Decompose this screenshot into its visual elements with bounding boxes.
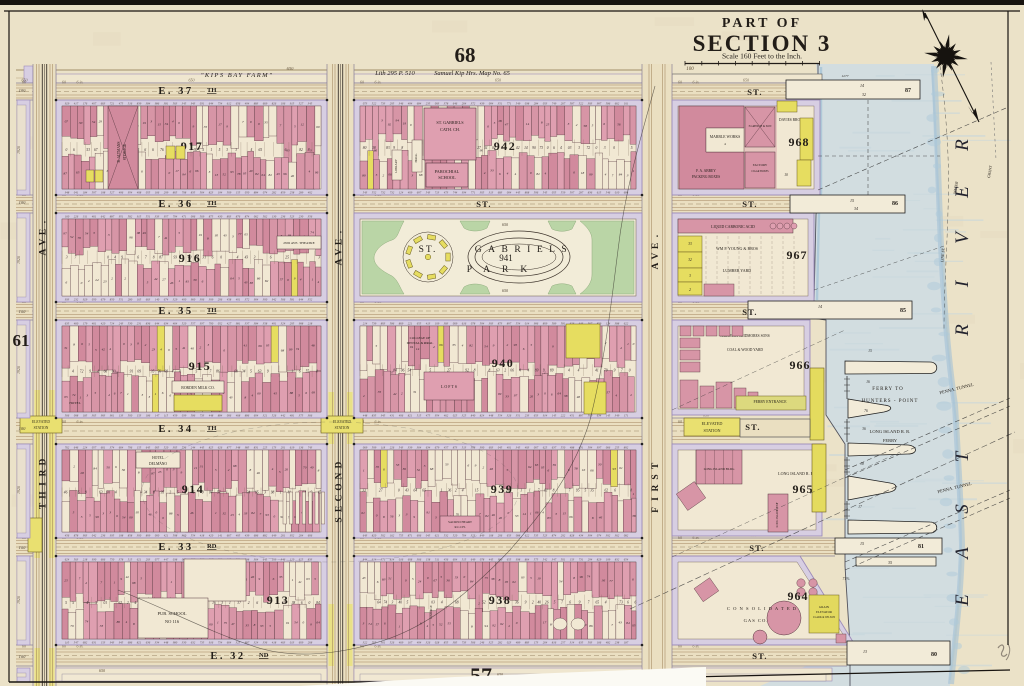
svg-text:194: 194 (218, 191, 223, 195)
svg-text:S: S (335, 517, 345, 522)
svg-text:874: 874 (552, 534, 557, 538)
svg-text:35: 35 (246, 623, 250, 627)
svg-text:589: 589 (552, 322, 557, 326)
svg-text:40: 40 (538, 601, 542, 605)
svg-text:347: 347 (552, 558, 557, 562)
svg-text:94: 94 (485, 624, 489, 628)
svg-text:5: 5 (269, 624, 271, 628)
svg-text:1: 1 (627, 342, 629, 346)
svg-text:38: 38 (372, 146, 376, 150)
svg-text:52: 52 (417, 468, 421, 472)
svg-text:3: 3 (627, 174, 629, 178)
svg-text:1926: 1926 (16, 256, 21, 264)
svg-text:LIBRARY: LIBRARY (394, 158, 398, 173)
svg-text:735: 735 (200, 641, 205, 645)
svg-text:372: 372 (245, 298, 250, 302)
svg-text:16: 16 (212, 601, 216, 605)
svg-text:078: 078 (471, 322, 476, 326)
svg-text:488: 488 (570, 446, 575, 450)
svg-text:2: 2 (483, 465, 485, 469)
svg-text:2: 2 (508, 624, 510, 628)
svg-text:HOTEL: HOTEL (152, 456, 164, 460)
svg-text:653: 653 (507, 534, 512, 538)
svg-text:650: 650 (189, 78, 195, 83)
svg-text:46: 46 (251, 575, 255, 579)
svg-text:64: 64 (377, 601, 381, 605)
svg-text:803: 803 (381, 322, 386, 326)
svg-text:7: 7 (120, 391, 122, 395)
svg-text:6: 6 (116, 514, 118, 518)
svg-text:84: 84 (619, 173, 623, 177)
svg-text:93: 93 (521, 575, 525, 579)
svg-text:515: 515 (128, 558, 133, 562)
svg-text:D: D (335, 461, 345, 468)
svg-text:3: 3 (411, 173, 413, 177)
svg-text:42: 42 (126, 575, 130, 579)
svg-text:469: 469 (399, 641, 404, 645)
svg-text:5: 5 (175, 347, 177, 351)
svg-text:9: 9 (475, 464, 477, 468)
svg-text:011: 011 (624, 102, 629, 106)
svg-text:4: 4 (237, 256, 239, 260)
svg-text:481: 481 (290, 414, 295, 418)
svg-text:445: 445 (489, 558, 494, 562)
svg-text:100: 100 (19, 88, 27, 93)
svg-text:9: 9 (543, 369, 545, 373)
svg-text:57: 57 (280, 278, 284, 282)
svg-text:1: 1 (280, 491, 282, 495)
svg-text:733: 733 (462, 641, 467, 645)
svg-text:64: 64 (230, 277, 234, 281)
svg-text:4: 4 (542, 511, 544, 515)
svg-text:35: 35 (590, 489, 594, 493)
svg-text:0: 0 (274, 515, 276, 519)
svg-text:83: 83 (250, 281, 254, 285)
svg-text:94: 94 (396, 118, 400, 122)
svg-text:4: 4 (85, 581, 87, 585)
svg-text:951: 951 (119, 215, 124, 219)
svg-text:70: 70 (78, 236, 82, 240)
svg-text:PARK: PARK (467, 265, 539, 275)
svg-text:622: 622 (624, 322, 629, 326)
svg-text:11: 11 (194, 466, 197, 470)
svg-text:0: 0 (398, 489, 400, 493)
svg-text:828: 828 (570, 534, 575, 538)
svg-text:869: 869 (399, 322, 404, 326)
svg-text:FERRY ENTRANCE: FERRY ENTRANCE (753, 400, 787, 404)
svg-text:96: 96 (315, 171, 319, 175)
svg-text:2: 2 (73, 465, 75, 469)
svg-text:94: 94 (182, 173, 186, 177)
svg-text:TH: TH (207, 87, 216, 94)
svg-text:526: 526 (390, 641, 395, 645)
svg-text:6: 6 (299, 370, 301, 374)
svg-text:964: 964 (788, 589, 809, 603)
svg-text:764: 764 (462, 534, 467, 538)
svg-text:51: 51 (388, 577, 392, 581)
svg-text:54: 54 (484, 345, 488, 349)
svg-text:5: 5 (215, 468, 217, 472)
svg-text:581: 581 (561, 322, 566, 326)
svg-text:069: 069 (363, 446, 368, 450)
svg-text:7: 7 (145, 256, 147, 260)
svg-text:445: 445 (516, 191, 521, 195)
svg-text:264: 264 (299, 534, 304, 538)
svg-text:31: 31 (64, 346, 68, 350)
svg-text:64: 64 (414, 489, 418, 493)
svg-text:145: 145 (606, 414, 611, 418)
svg-text:6: 6 (383, 468, 385, 472)
svg-text:351: 351 (498, 102, 503, 106)
svg-text:LUMBER YARD: LUMBER YARD (723, 268, 752, 273)
svg-text:96: 96 (580, 575, 584, 579)
svg-text:406: 406 (399, 414, 404, 418)
svg-text:34: 34 (165, 122, 169, 126)
svg-text:7: 7 (569, 489, 571, 493)
svg-text:028: 028 (435, 641, 440, 645)
svg-text:74: 74 (72, 393, 76, 397)
svg-text:E. 35: E. 35 (158, 306, 193, 317)
svg-text:5: 5 (178, 231, 180, 235)
svg-text:40: 40 (249, 169, 253, 173)
svg-text:41: 41 (164, 236, 168, 240)
svg-text:147: 147 (155, 414, 160, 418)
svg-text:6: 6 (273, 577, 275, 581)
svg-text:5: 5 (440, 575, 442, 579)
svg-text:637: 637 (552, 446, 557, 450)
svg-text:9: 9 (259, 577, 261, 581)
svg-text:314: 314 (570, 641, 575, 645)
svg-text:9: 9 (552, 345, 554, 349)
svg-text:8: 8 (630, 489, 632, 493)
svg-text:3: 3 (235, 148, 237, 152)
svg-text:34: 34 (242, 370, 246, 374)
svg-text:5: 5 (530, 576, 532, 580)
svg-text:448: 448 (164, 641, 169, 645)
svg-text:4: 4 (308, 170, 310, 174)
svg-text:3: 3 (398, 514, 400, 518)
svg-text:86: 86 (216, 370, 220, 374)
svg-text:13: 13 (215, 173, 219, 177)
svg-text:60: 60 (62, 80, 66, 85)
svg-text:3: 3 (130, 343, 132, 347)
svg-text:93: 93 (174, 256, 178, 260)
svg-text:442: 442 (281, 414, 286, 418)
svg-text:439: 439 (245, 534, 250, 538)
svg-text:631: 631 (92, 641, 97, 645)
svg-text:456: 456 (444, 558, 449, 562)
svg-text:28: 28 (80, 471, 84, 475)
svg-text:SCHOOL: SCHOOL (438, 175, 456, 180)
svg-text:3: 3 (264, 491, 266, 495)
svg-text:57: 57 (217, 491, 221, 495)
svg-text:6 in.: 6 in. (374, 80, 381, 85)
svg-text:43: 43 (362, 576, 366, 580)
svg-text:186: 186 (146, 414, 151, 418)
svg-text:CIGAR BOXES: CIGAR BOXES (751, 170, 769, 173)
svg-text:32: 32 (223, 512, 227, 516)
svg-text:53: 53 (515, 514, 519, 518)
svg-text:625: 625 (543, 446, 548, 450)
svg-text:884: 884 (218, 414, 223, 418)
svg-text:41: 41 (182, 346, 186, 350)
svg-text:6: 6 (547, 469, 549, 473)
svg-text:09: 09 (137, 370, 141, 374)
svg-text:622: 622 (525, 534, 530, 538)
svg-text:8: 8 (318, 468, 320, 472)
svg-text:4: 4 (114, 256, 116, 260)
svg-text:8: 8 (499, 578, 501, 582)
svg-text:235: 235 (426, 102, 431, 106)
svg-text:798: 798 (182, 191, 187, 195)
svg-text:874: 874 (245, 215, 250, 219)
svg-text:468: 468 (236, 414, 241, 418)
svg-text:649: 649 (471, 558, 476, 562)
svg-text:43: 43 (618, 621, 622, 625)
svg-text:3: 3 (310, 149, 312, 153)
svg-text:981: 981 (236, 322, 241, 326)
svg-text:218: 218 (308, 322, 313, 326)
svg-text:2: 2 (199, 346, 201, 350)
svg-text:831: 831 (254, 446, 259, 450)
svg-text:358: 358 (263, 322, 268, 326)
svg-text:915: 915 (189, 359, 212, 373)
svg-text:345: 345 (182, 102, 187, 106)
svg-text:5: 5 (298, 394, 300, 398)
svg-text:37: 37 (237, 601, 241, 605)
svg-text:78: 78 (237, 172, 241, 176)
svg-text:7: 7 (561, 601, 563, 605)
svg-text:53: 53 (396, 463, 400, 467)
svg-text:378: 378 (444, 102, 449, 106)
svg-text:0: 0 (178, 121, 180, 125)
svg-text:771: 771 (507, 102, 512, 106)
svg-text:4: 4 (135, 601, 137, 605)
svg-text:DAVIES BROS.: DAVIES BROS. (779, 118, 803, 122)
svg-text:460: 460 (74, 322, 79, 326)
svg-text:0: 0 (309, 601, 311, 605)
svg-text:6 in.: 6 in. (76, 419, 83, 424)
svg-text:408: 408 (137, 191, 142, 195)
svg-text:3: 3 (406, 513, 408, 517)
svg-text:4: 4 (251, 394, 253, 398)
svg-text:074: 074 (597, 534, 602, 538)
svg-text:34: 34 (144, 491, 148, 495)
svg-text:542: 542 (543, 558, 548, 562)
svg-text:3: 3 (208, 343, 210, 347)
svg-text:897: 897 (507, 322, 512, 326)
svg-text:731: 731 (579, 558, 584, 562)
svg-text:3: 3 (568, 122, 570, 126)
svg-text:1: 1 (312, 278, 314, 282)
svg-text:44: 44 (154, 277, 158, 281)
svg-text:494: 494 (408, 102, 413, 106)
svg-text:597: 597 (92, 191, 97, 195)
svg-text:LONG ISLAND EXP: LONG ISLAND EXP (776, 502, 779, 527)
svg-text:68: 68 (419, 173, 423, 177)
svg-text:06: 06 (569, 515, 573, 519)
svg-text:635: 635 (579, 641, 584, 645)
svg-text:43: 43 (276, 172, 280, 176)
svg-text:3: 3 (578, 146, 580, 150)
svg-text:023: 023 (507, 641, 512, 645)
svg-text:84: 84 (251, 511, 255, 515)
svg-text:849: 849 (480, 534, 485, 538)
svg-text:050: 050 (92, 298, 97, 302)
svg-text:933: 933 (65, 298, 70, 302)
svg-text:374: 374 (110, 446, 115, 450)
svg-text:41: 41 (244, 344, 248, 348)
svg-text:40: 40 (191, 346, 195, 350)
svg-text:95: 95 (136, 510, 140, 514)
svg-text:4: 4 (238, 512, 240, 516)
svg-text:941: 941 (499, 253, 513, 263)
svg-text:0: 0 (464, 575, 466, 579)
svg-text:645: 645 (263, 558, 268, 562)
svg-text:17: 17 (175, 169, 179, 173)
svg-text:FERRY: FERRY (883, 438, 898, 443)
svg-text:PART OF: PART OF (722, 16, 802, 31)
svg-text:6: 6 (551, 392, 553, 396)
svg-text:6: 6 (487, 125, 489, 129)
svg-text:877: 877 (227, 446, 232, 450)
svg-text:045: 045 (498, 446, 503, 450)
svg-text:5: 5 (89, 514, 91, 518)
svg-text:E: E (651, 243, 661, 249)
svg-text:83: 83 (547, 516, 551, 520)
svg-text:84: 84 (393, 369, 397, 373)
svg-text:045: 045 (426, 534, 431, 538)
svg-text:2: 2 (88, 279, 90, 283)
svg-text:E. 33: E. 33 (158, 542, 193, 553)
svg-text:65: 65 (259, 148, 263, 152)
svg-text:90: 90 (96, 515, 100, 519)
svg-text:8: 8 (153, 491, 155, 495)
svg-text:564: 564 (200, 191, 205, 195)
svg-text:R: R (651, 484, 661, 491)
svg-text:545: 545 (543, 191, 548, 195)
svg-text:586: 586 (191, 414, 196, 418)
svg-text:5: 5 (250, 370, 252, 374)
svg-text:SACRED HEART: SACRED HEART (448, 520, 472, 524)
svg-text:616: 616 (462, 322, 467, 326)
svg-text:56: 56 (122, 468, 126, 472)
svg-text:532: 532 (444, 534, 449, 538)
svg-text:31: 31 (413, 390, 417, 394)
svg-text:4: 4 (568, 369, 570, 373)
svg-text:821: 821 (408, 414, 413, 418)
svg-text:43: 43 (245, 256, 249, 260)
svg-text:608: 608 (408, 558, 413, 562)
svg-text:60: 60 (62, 419, 66, 424)
svg-text:WM P. YOUNG & BROS: WM P. YOUNG & BROS (716, 246, 758, 251)
svg-text:52: 52 (439, 622, 443, 626)
svg-text:63: 63 (306, 577, 310, 581)
svg-text:7: 7 (612, 174, 614, 178)
svg-text:14: 14 (526, 122, 530, 126)
svg-text:016: 016 (399, 558, 404, 562)
svg-text:05: 05 (541, 466, 545, 470)
svg-text:684: 684 (417, 102, 422, 106)
svg-text:86: 86 (892, 201, 898, 207)
svg-text:635: 635 (65, 322, 70, 326)
svg-text:282: 282 (272, 191, 277, 195)
svg-text:9: 9 (137, 342, 139, 346)
svg-text:6: 6 (285, 148, 287, 152)
svg-text:823: 823 (209, 191, 214, 195)
svg-text:8: 8 (207, 236, 209, 240)
svg-text:9: 9 (193, 125, 195, 129)
svg-text:243: 243 (119, 322, 124, 326)
svg-text:7: 7 (79, 576, 81, 580)
svg-text:77: 77 (238, 232, 242, 236)
svg-text:145: 145 (552, 414, 557, 418)
svg-text:F.GRENCH & SON: F.GRENCH & SON (749, 125, 772, 128)
svg-text:996: 996 (534, 322, 539, 326)
svg-text:72: 72 (587, 146, 591, 150)
svg-text:401: 401 (236, 298, 241, 302)
svg-text:ST.: ST. (747, 87, 763, 97)
svg-text:366: 366 (308, 414, 313, 418)
svg-text:224: 224 (83, 446, 88, 450)
svg-text:954: 954 (128, 191, 133, 195)
svg-text:PAROCHIAL: PAROCHIAL (435, 169, 460, 174)
svg-text:6: 6 (384, 622, 386, 626)
svg-text:399: 399 (209, 298, 214, 302)
svg-text:430: 430 (218, 215, 223, 219)
svg-text:83: 83 (382, 578, 386, 582)
svg-text:461: 461 (92, 322, 97, 326)
svg-text:166: 166 (597, 641, 602, 645)
svg-text:816: 816 (552, 641, 557, 645)
svg-text:88: 88 (290, 391, 294, 395)
svg-text:644: 644 (209, 102, 214, 106)
svg-text:6: 6 (468, 463, 470, 467)
svg-text:826: 826 (272, 102, 277, 106)
svg-text:MARBLE WORKS: MARBLE WORKS (710, 135, 740, 139)
svg-text:736: 736 (182, 446, 187, 450)
svg-text:352: 352 (308, 298, 313, 302)
svg-text:221: 221 (408, 322, 413, 326)
svg-text:9: 9 (493, 344, 495, 348)
svg-text:1: 1 (178, 279, 180, 283)
svg-text:6: 6 (81, 342, 83, 346)
svg-text:427: 427 (227, 322, 232, 326)
svg-text:418: 418 (272, 641, 277, 645)
svg-text:01: 01 (104, 601, 108, 605)
svg-text:7: 7 (259, 512, 261, 516)
svg-text:04: 04 (209, 491, 213, 495)
svg-text:5: 5 (554, 601, 556, 605)
svg-text:4: 4 (724, 142, 726, 146)
svg-text:413: 413 (426, 322, 431, 326)
svg-text:4: 4 (115, 491, 117, 495)
svg-text:100: 100 (19, 654, 27, 659)
svg-text:1: 1 (79, 395, 81, 399)
svg-text:5: 5 (73, 510, 75, 514)
svg-text:1: 1 (291, 370, 293, 374)
svg-text:632: 632 (191, 641, 196, 645)
svg-text:8: 8 (73, 343, 75, 347)
svg-text:4: 4 (544, 172, 546, 176)
svg-text:6: 6 (162, 391, 164, 395)
svg-text:835: 835 (191, 191, 196, 195)
svg-text:407: 407 (92, 102, 97, 106)
svg-text:586: 586 (606, 102, 611, 106)
svg-text:47: 47 (231, 622, 235, 626)
svg-text:255: 255 (615, 446, 620, 450)
svg-text:299: 299 (164, 191, 169, 195)
